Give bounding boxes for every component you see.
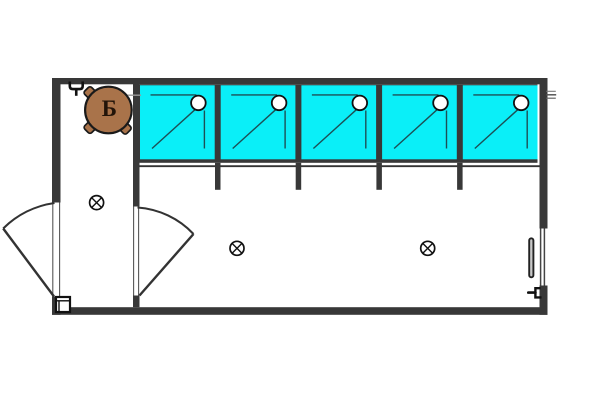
svg-text:Б: Б: [102, 96, 117, 121]
